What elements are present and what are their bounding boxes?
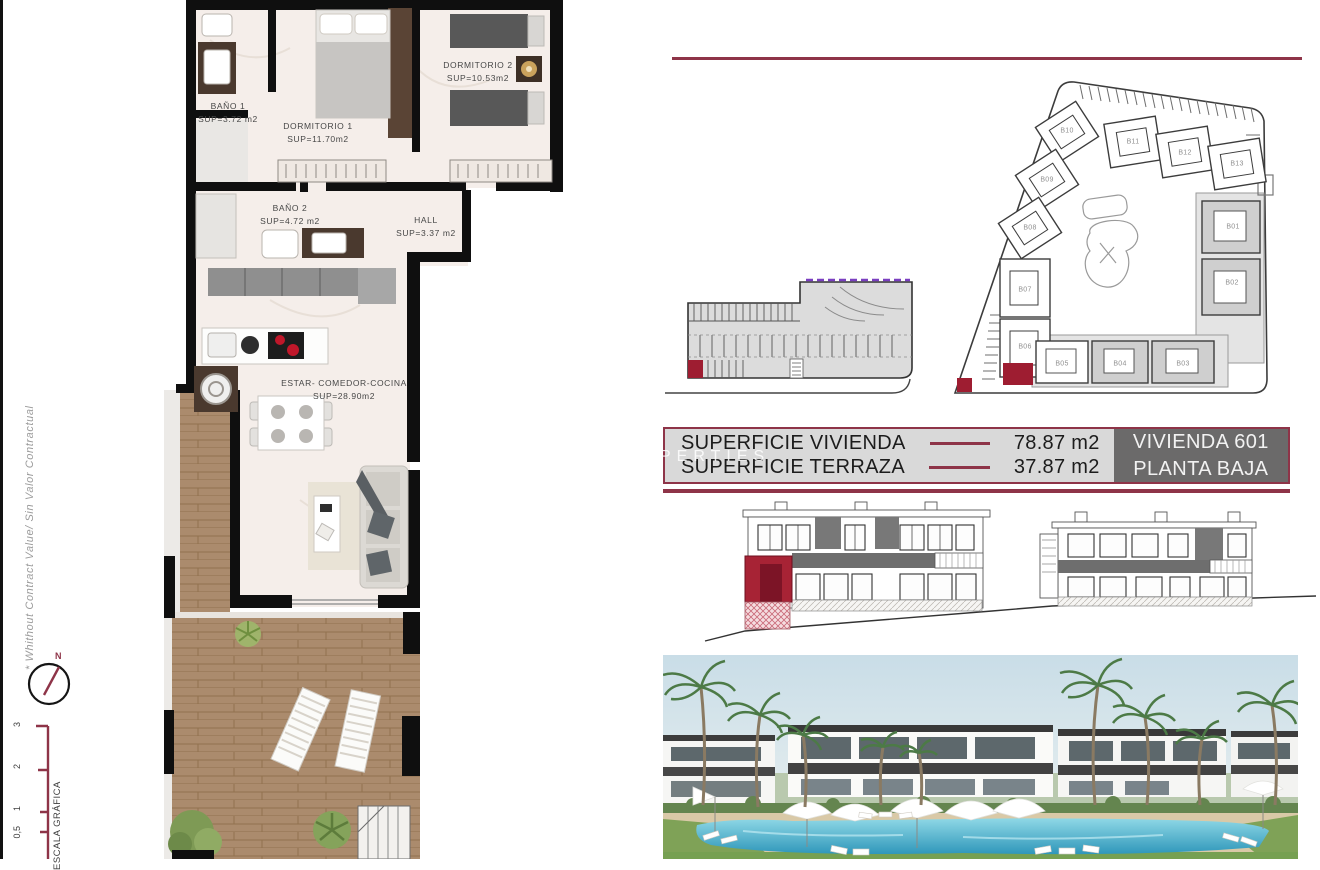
sofa (356, 466, 408, 588)
room-label-hall: HALLSUP=3.37 m2 (396, 214, 456, 240)
scale-tick-2: 2 (12, 764, 22, 769)
compass-north-label: N (55, 651, 62, 661)
top-divider-rule (672, 57, 1302, 60)
bar-bottom-rule (663, 489, 1290, 493)
building-label-b12: B12 (1178, 150, 1191, 157)
plant-palm (313, 811, 351, 849)
building-label-b07: B07 (1018, 287, 1031, 294)
building-label-b06: B06 (1018, 344, 1031, 351)
building-label-b10: B10 (1060, 128, 1073, 135)
room-label-estar: ESTAR- COMEDOR-COCINASUP=28.90m2 (281, 377, 407, 403)
building-label-b13: B13 (1230, 161, 1243, 168)
watermark-text: PERTIES (660, 448, 770, 466)
building-label-b04: B04 (1113, 361, 1126, 368)
room-label-dormitorio2: DORMITORIO 2SUP=10.53m2 (443, 59, 512, 85)
plant-small (235, 621, 261, 647)
building-label-b03: B03 (1176, 361, 1189, 368)
building-label-b08: B08 (1023, 225, 1036, 232)
building-label-b05: B05 (1055, 361, 1068, 368)
compass-icon (20, 648, 80, 710)
building-label-b09: B09 (1040, 177, 1053, 184)
unit-identifier-box: VIVIENDA 601 PLANTA BAJA (1114, 429, 1288, 482)
surface-terraza-value: 37.87 m2 (1008, 456, 1100, 479)
elevation-drawings (700, 500, 1320, 648)
garage-plan-drawing (660, 265, 920, 400)
highlighted-storage-garage (688, 360, 703, 378)
floor-plan-drawing (150, 0, 580, 859)
rule-dash-2 (929, 466, 990, 469)
building-label-b01: B01 (1226, 224, 1239, 231)
highlighted-unit-siteplan (1003, 363, 1033, 385)
scale-tick-3: 3 (12, 722, 22, 727)
highlighted-unit-elevation (745, 556, 792, 629)
complex-render-photo (663, 655, 1298, 859)
dining-table (250, 396, 332, 450)
disclaimer-note: * Whithout Contract Value/ Sin Valor Con… (24, 330, 42, 670)
unit-floor: PLANTA BAJA (1133, 456, 1268, 483)
scale-tick-05: 0,5 (12, 826, 22, 839)
scale-caption: ESCALA GRÁFICA (52, 760, 63, 870)
unit-name: VIVIENDA 601 (1133, 429, 1269, 456)
surface-vivienda-value: 78.87 m2 (1008, 432, 1100, 455)
rule-dash-1 (930, 442, 990, 445)
room-label-bano1: BAÑO 1SUP=3.72 m2 (198, 100, 258, 126)
sheet-edge-line (0, 0, 3, 859)
site-plan-drawing (940, 75, 1320, 405)
room-label-dormitorio1: DORMITORIO 1SUP=11.70m2 (283, 120, 352, 146)
stairs (358, 806, 410, 859)
building-label-b11: B11 (1127, 139, 1140, 146)
plan-sheet: { "side": { "disclaimer": "* Whithout Co… (0, 0, 1320, 859)
room-label-bano2: BAÑO 2SUP=4.72 m2 (260, 202, 320, 228)
building-label-b02: B02 (1225, 280, 1238, 287)
scale-tick-1: 1 (12, 806, 22, 811)
